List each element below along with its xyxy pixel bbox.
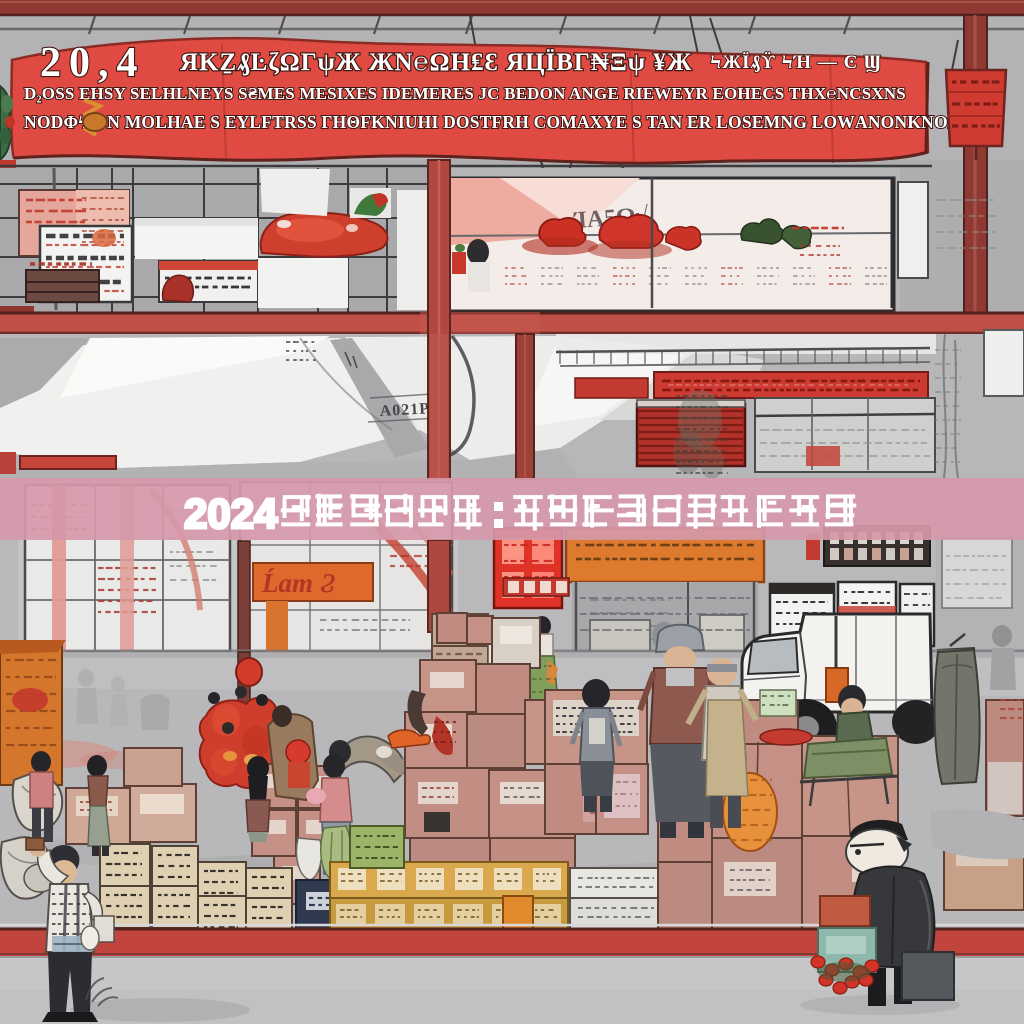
svg-text:Α021Ρ.: Α021Ρ. [379,400,434,420]
svg-text:ЯΚẔ₰ĿζΩΓψЖ ЖΝ℮ΩΗ₤Ɛ ЯЦΪΒΓ₦Ξψ ¥Ж: ЯΚẔ₰ĿζΩΓψЖ ЖΝ℮ΩΗ₤Ɛ ЯЦΪΒΓ₦Ξψ ¥Ж [180,49,692,76]
svg-text:20,4: 20,4 [40,40,146,86]
svg-text:NODΦϟΙΟΝ MOLHAE S ΕΥLFΤRSS ΓΗΘ: NODΦϟΙΟΝ MOLHAE S ΕΥLFΤRSS ΓΗΘFΚΝΙUΗΙ DO… [24,112,961,132]
svg-text:2024: 2024 [184,490,278,537]
svg-text:Ĺam Ϩ: Ĺam Ϩ [261,568,336,598]
svg-text:D₂OSS EHSY SELHLNEYS S₴MES MES: D₂OSS EHSY SELHLNEYS S₴MES MESIXES IDEME… [24,84,906,103]
svg-text:ϞЖΪ₰ϔ ϞΉ — Ͼ Ϣ: ϞЖΪ₰ϔ ϞΉ — Ͼ Ϣ [710,52,882,73]
